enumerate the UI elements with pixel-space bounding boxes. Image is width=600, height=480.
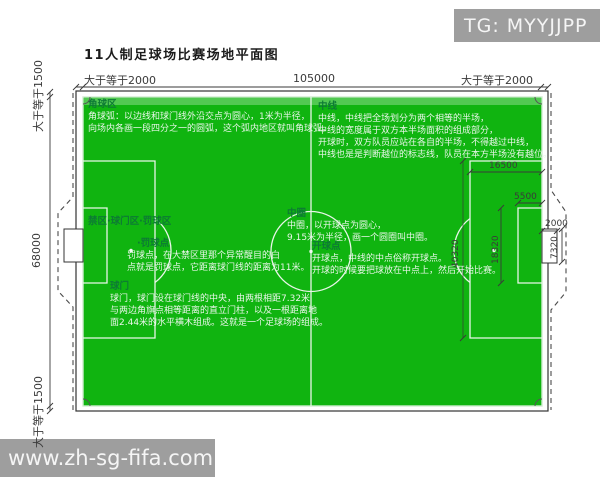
dim-top-center: 105000: [293, 72, 335, 85]
annotation-mid-line: 中线 中线，中线把全场划分为两个相等的半场， 中线的宽度属于双方本半场面积的组成…: [318, 101, 552, 161]
penalty-zone-heading: 禁区·球门区·罚球区: [88, 216, 171, 228]
field-plan-diagram: TG: MYYJJPP www.zh-sg-fifa.com 11人制足球场比赛…: [0, 0, 600, 480]
goal-heading: 球门: [110, 281, 328, 293]
goal-line: 面2.44米的水平横木组成。这就是一个足球场的组成。: [110, 317, 328, 329]
annotation-penalty-spot: ·罚球点 罚球点，在大禁区里那个异常醒目的白 点就是罚球点，它距离球门线的距离为…: [127, 238, 309, 274]
page-title: 11人制足球场比赛场地平面图: [84, 44, 279, 63]
tg-watermark: TG: MYYJJPP: [454, 9, 600, 42]
mid-line-line: 中线，中线把全场划分为两个相等的半场，: [318, 113, 552, 125]
center-circle-heading: 中圈: [287, 208, 433, 220]
dim-left-top: 大于等于1500: [30, 60, 46, 132]
dim-goal-width: 7320: [550, 236, 560, 259]
penalty-spot-line: 点就是罚球点，它距离球门线的距离为11米。: [127, 262, 309, 274]
mid-line-heading: 中线: [318, 101, 552, 113]
dim-top-right: 大于等于2000: [461, 72, 533, 88]
mid-line-line: 中线的宽度属于双方本半场面积的组成部分，: [318, 125, 552, 137]
kickoff-point-heading: 开球点: [312, 241, 501, 253]
corner-area-line: 角球弧：以边线和球门线外沿交点为圆心，1米为半径，: [88, 111, 331, 123]
dim-penalty-area-depth: 16500: [489, 161, 518, 171]
goal-line: 与两边角旗点相等距离的直立门柱，以及一根距离地: [110, 305, 328, 317]
corner-area-line: 向场内各画一段四分之一的圆弧，这个弧内地区就叫角球弧。: [88, 123, 331, 135]
penalty-spot-line: 罚球点，在大禁区里那个异常醒目的白: [127, 250, 309, 262]
dim-left-middle: 68000: [30, 233, 43, 268]
goal-line: 球门，球门设在球门线的中央，由两根相距7.32米: [110, 293, 328, 305]
dim-goal-depth: 2000: [545, 219, 568, 229]
site-watermark-text: www.zh-sg-fifa.com: [8, 446, 213, 470]
goal-left: [64, 229, 83, 262]
annotation-corner-area: 角球区 角球弧：以边线和球门线外沿交点为圆心，1米为半径， 向场内各画一段四分之…: [88, 99, 331, 135]
mid-line-line: 开球时，双方队员应站在各自的半场，不得越过中线，: [318, 137, 552, 149]
dim-left-bottom: 大于等于1500: [30, 376, 46, 448]
center-circle-line: 中圈，以开球点为圆心，: [287, 220, 433, 232]
annotation-goal: 球门 球门，球门设在球门线的中央，由两根相距7.32米 与两边角旗点相等距离的直…: [110, 281, 328, 329]
kickoff-point-line: 开球点，中线的中点俗称开球点。: [312, 253, 501, 265]
corner-area-heading: 角球区: [88, 99, 331, 111]
kickoff-point-line: 开球的时候要把球放在中点上，然后开始比赛。: [312, 265, 501, 277]
mid-line-line: 中线也是是判断越位的标志线，队员在本方半场没有越位。: [318, 149, 552, 161]
dim-top-left: 大于等于2000: [84, 72, 156, 88]
penalty-spot-heading: ·罚球点: [137, 238, 309, 250]
annotation-kickoff-point: 开球点 开球点，中线的中点俗称开球点。 开球的时候要把球放在中点上，然后开始比赛…: [312, 241, 501, 277]
tg-watermark-text: TG: MYYJJPP: [464, 15, 588, 37]
dim-goal-area-depth: 5500: [514, 192, 537, 202]
annotation-penalty-zone: 禁区·球门区·罚球区: [88, 216, 171, 228]
